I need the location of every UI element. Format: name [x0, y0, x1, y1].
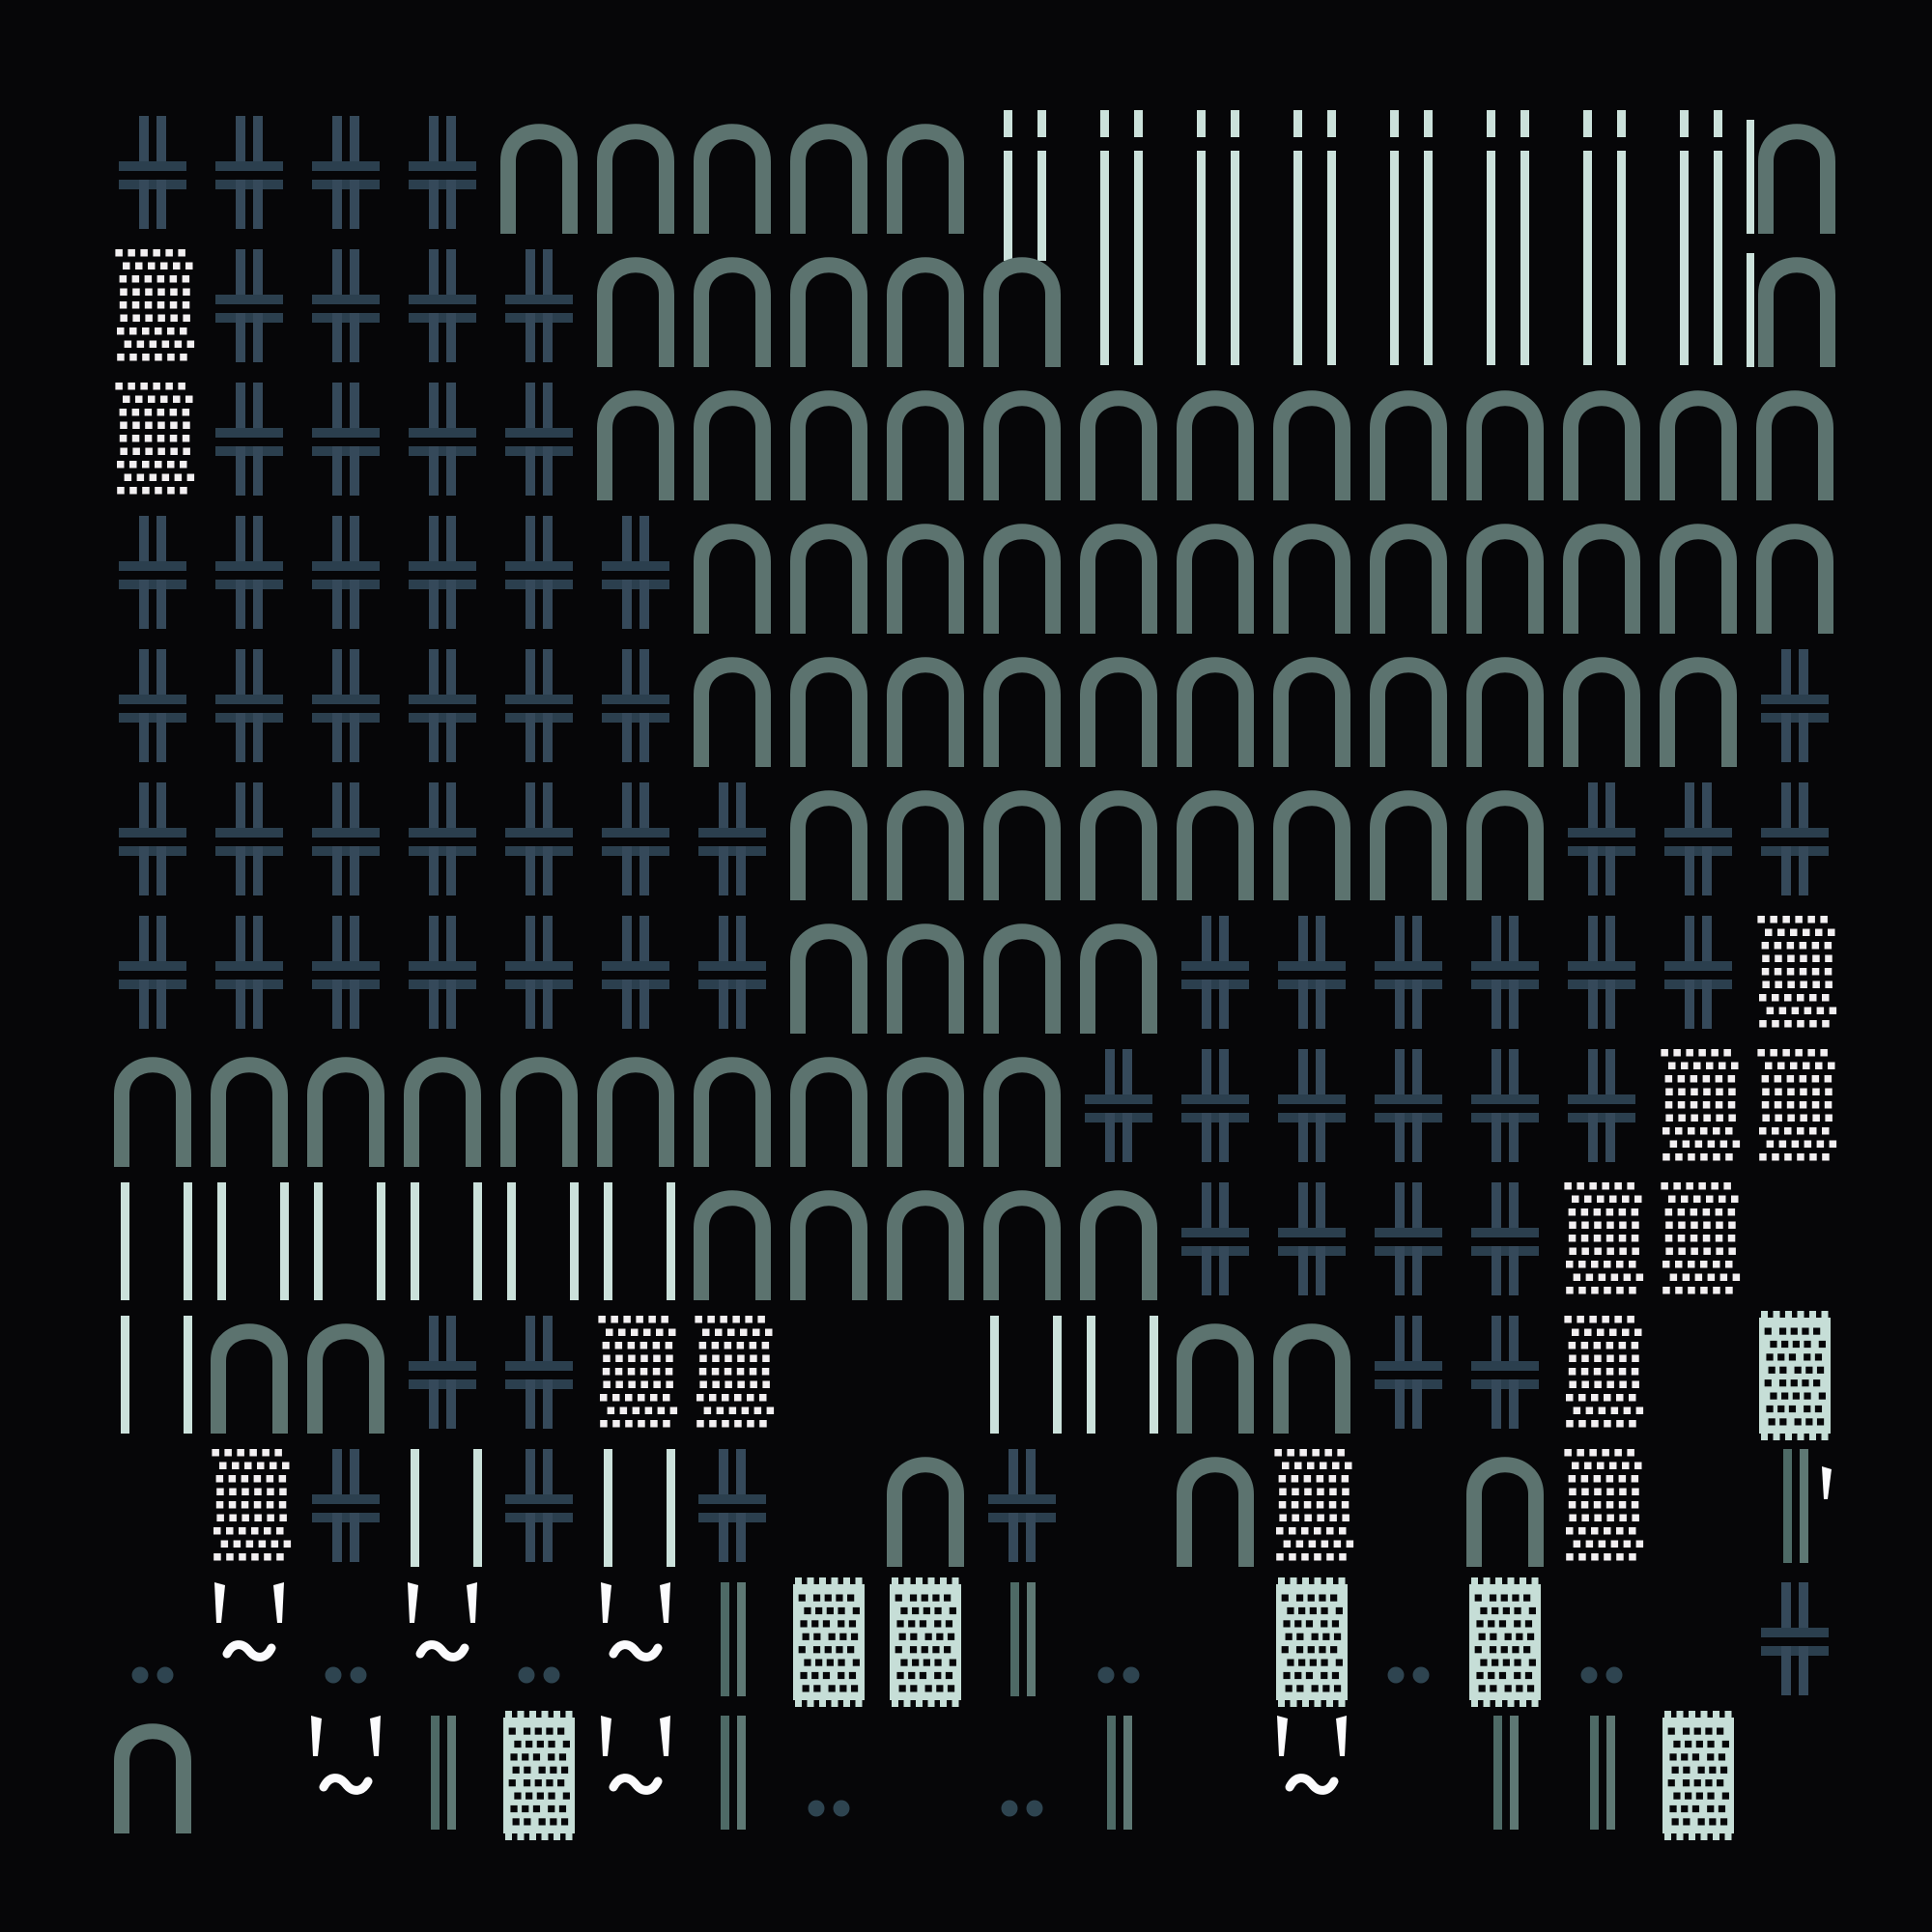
glyph-waffle-block-mint: [890, 1577, 961, 1707]
artwork-canvas: [0, 0, 1932, 1932]
generative-art-svg: [0, 0, 1932, 1932]
glyph-waffle-block-mint: [793, 1577, 865, 1707]
glyph-waffle-block-mint: [1276, 1577, 1348, 1707]
glyph-waffle-block-mint: [1662, 1711, 1734, 1840]
glyph-waffle-block-mint: [1759, 1311, 1831, 1440]
glyph-waffle-block-mint: [503, 1711, 575, 1840]
glyph-waffle-block-mint: [1469, 1577, 1541, 1707]
